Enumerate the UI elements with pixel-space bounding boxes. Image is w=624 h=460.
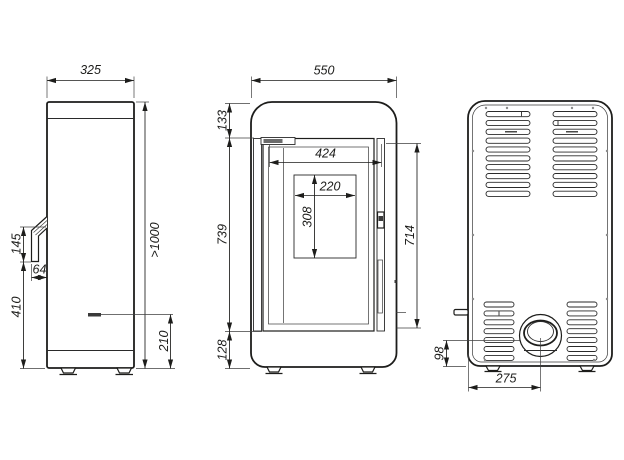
- screw-dot: [606, 150, 608, 152]
- side-foot-right: [117, 368, 132, 373]
- door-latch-detail: [379, 216, 384, 221]
- dim-handle-depth: 64: [33, 263, 47, 277]
- front-foot-left: [267, 367, 281, 372]
- dim-door-width: 424: [315, 147, 336, 161]
- dim-top-offset: 133: [216, 110, 230, 131]
- screw-dot: [592, 107, 594, 109]
- air-inlet-mark: [88, 313, 101, 317]
- side-view: 325 >1000 210 145 410 64: [10, 63, 176, 375]
- front-foot-right: [361, 367, 375, 372]
- screw-dot: [472, 298, 474, 300]
- door-hinge-detail: [264, 139, 283, 143]
- screw-dot: [485, 107, 487, 109]
- screw-dot: [606, 298, 608, 300]
- dim-side-depth: 325: [80, 63, 101, 77]
- side-body-outline: [47, 102, 134, 368]
- cable-stub: [454, 310, 468, 316]
- screw-dot: [484, 359, 486, 361]
- screw-dot: [606, 234, 608, 236]
- screw-dot: [571, 107, 573, 109]
- dim-door-height: 739: [216, 224, 230, 245]
- screw-dot: [593, 359, 595, 361]
- side-hinge-pin: [395, 280, 397, 283]
- dim-glass-width: 220: [319, 180, 341, 194]
- dim-flue-height: 98: [433, 347, 447, 361]
- back-foot-right: [580, 366, 594, 371]
- dim-clearance-height: >1000: [148, 222, 162, 257]
- stove-dimension-drawing: 325 >1000 210 145 410 64: [0, 0, 624, 460]
- back-foot-left: [486, 366, 500, 371]
- front-view: 550 133 739 128 424 220 308 714: [216, 64, 422, 374]
- dim-inlet-height: 210: [157, 331, 171, 353]
- screw-dot: [506, 107, 508, 109]
- dim-bottom-offset: 128: [216, 340, 230, 361]
- screw-dot: [472, 150, 474, 152]
- dim-handle-height: 145: [10, 234, 24, 255]
- back-view: 98 275: [433, 101, 613, 392]
- dim-glass-height: 308: [301, 207, 315, 228]
- door-handle: [32, 217, 48, 262]
- dim-handle-base-height: 410: [10, 297, 24, 318]
- screw-dot: [472, 234, 474, 236]
- dim-door-span: 714: [403, 225, 417, 246]
- technical-drawing-canvas: 325 >1000 210 145 410 64: [0, 0, 624, 460]
- dim-front-width: 550: [314, 64, 335, 78]
- side-foot-left: [61, 368, 76, 373]
- dim-flue-offset: 275: [495, 372, 517, 386]
